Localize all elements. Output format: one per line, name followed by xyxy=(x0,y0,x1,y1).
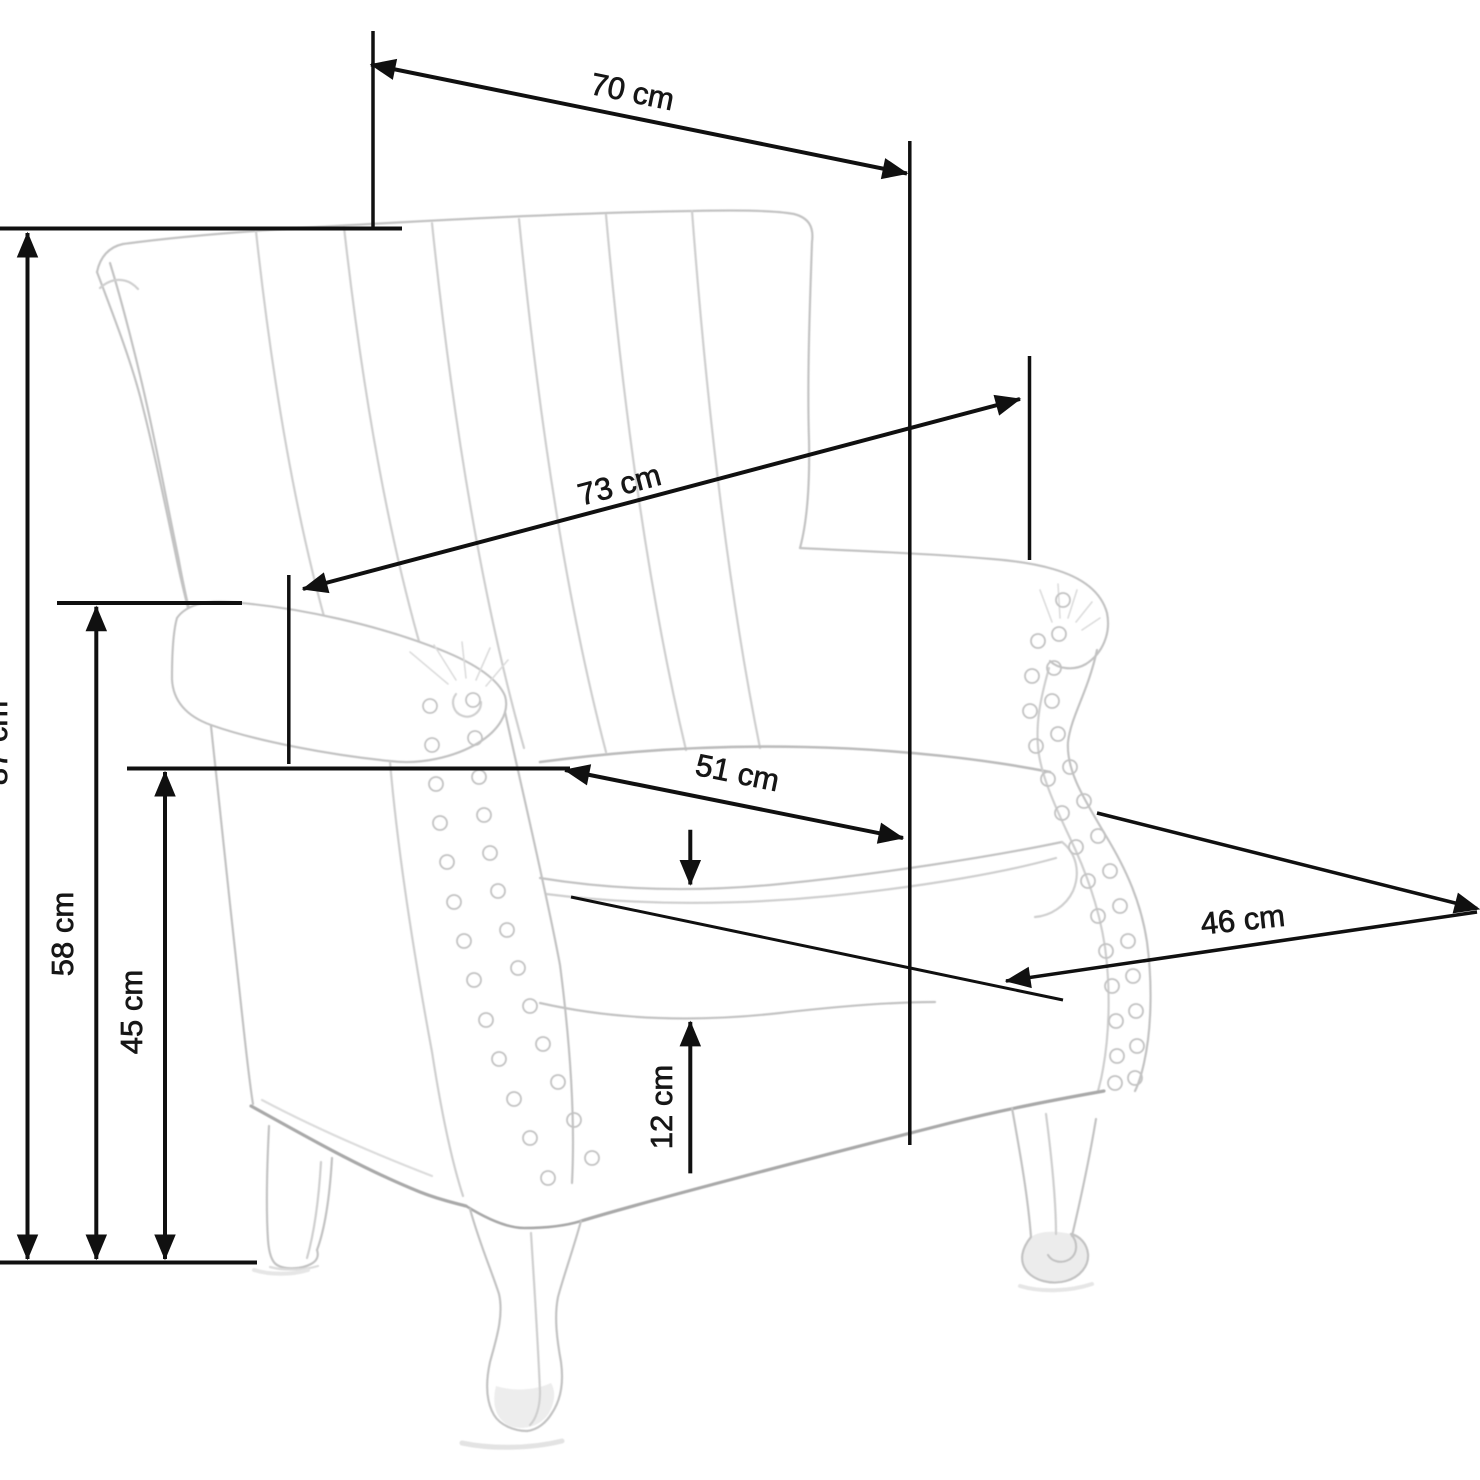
svg-text:12 cm: 12 cm xyxy=(644,1065,679,1149)
svg-text:45 cm: 45 cm xyxy=(114,970,149,1054)
svg-text:58 cm: 58 cm xyxy=(45,892,80,976)
svg-text:87 cm: 87 cm xyxy=(0,701,14,785)
